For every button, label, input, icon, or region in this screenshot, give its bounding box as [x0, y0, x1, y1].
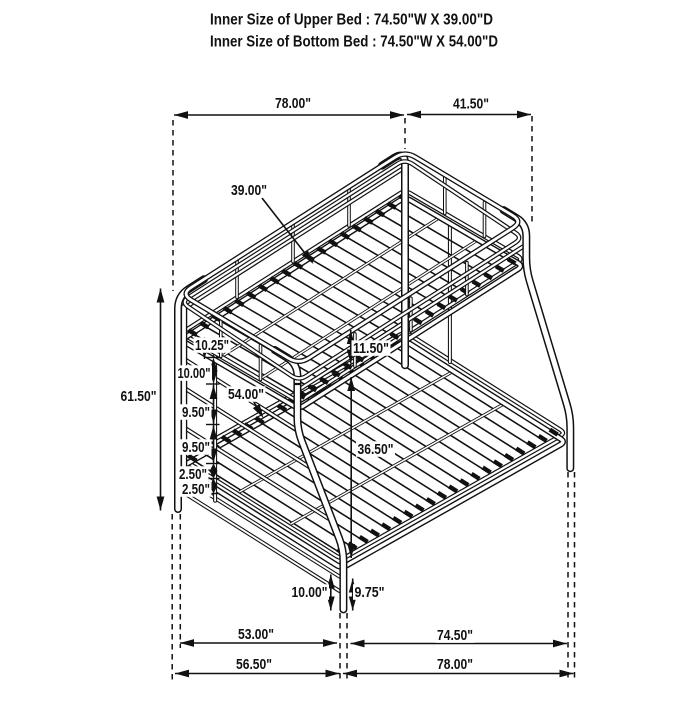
svg-text:78.00": 78.00" [437, 657, 473, 673]
svg-text:10.25": 10.25" [195, 338, 229, 354]
svg-text:2.50": 2.50" [179, 467, 207, 483]
svg-text:10.00": 10.00" [178, 366, 211, 382]
svg-text:53.00": 53.00" [238, 627, 274, 643]
svg-text:36.50": 36.50" [358, 442, 394, 458]
svg-text:41.50": 41.50" [453, 97, 489, 113]
svg-text:2.50": 2.50" [182, 482, 210, 498]
svg-text:78.00": 78.00" [275, 96, 311, 112]
svg-text:11.50": 11.50" [353, 341, 389, 357]
svg-text:9.50": 9.50" [182, 440, 210, 456]
svg-text:39.00": 39.00" [231, 183, 267, 199]
svg-text:74.50": 74.50" [437, 628, 473, 644]
svg-text:56.50": 56.50" [236, 657, 272, 673]
svg-text:54.00": 54.00" [228, 387, 264, 403]
svg-text:9.50": 9.50" [182, 405, 210, 421]
svg-text:9.75": 9.75" [355, 585, 385, 601]
svg-text:61.50": 61.50" [121, 389, 157, 405]
svg-text:Inner Size of Upper Bed : 74.5: Inner Size of Upper Bed : 74.50"W X 39.0… [210, 12, 493, 29]
svg-text:Inner Size of Bottom Bed : 74.: Inner Size of Bottom Bed : 74.50"W X 54.… [210, 34, 498, 51]
svg-text:10.00": 10.00" [292, 585, 328, 601]
